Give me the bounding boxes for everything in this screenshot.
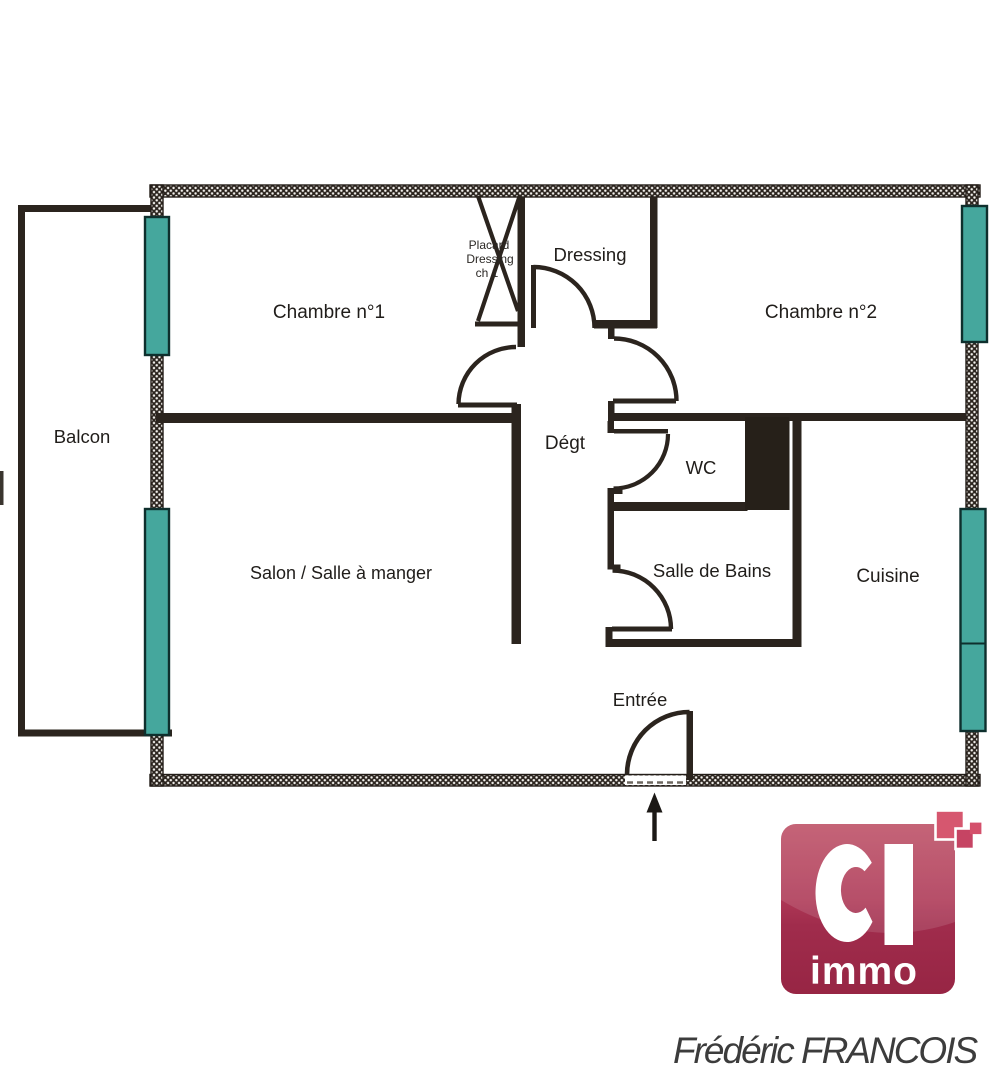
svg-text:Placard: Placard <box>469 238 510 252</box>
svg-text:Cuisine: Cuisine <box>856 566 919 587</box>
svg-text:immo: immo <box>810 950 918 993</box>
svg-text:Salle de Bains: Salle de Bains <box>653 560 771 581</box>
svg-text:WC: WC <box>686 457 717 478</box>
svg-text:Balcon: Balcon <box>54 426 111 447</box>
svg-text:Entrée: Entrée <box>613 689 668 710</box>
svg-text:Frédéric FRANCOIS: Frédéric FRANCOIS <box>673 1030 978 1071</box>
svg-text:Dressing: Dressing <box>466 252 513 266</box>
svg-text:Chambre n°2: Chambre n°2 <box>765 302 877 323</box>
svg-text:Dressing: Dressing <box>554 244 627 265</box>
svg-text:Dégt: Dégt <box>545 433 586 454</box>
svg-text:ch 1: ch 1 <box>476 266 499 280</box>
svg-text:Salon / Salle à manger: Salon / Salle à manger <box>250 563 432 583</box>
svg-text:Chambre n°1: Chambre n°1 <box>273 302 385 323</box>
